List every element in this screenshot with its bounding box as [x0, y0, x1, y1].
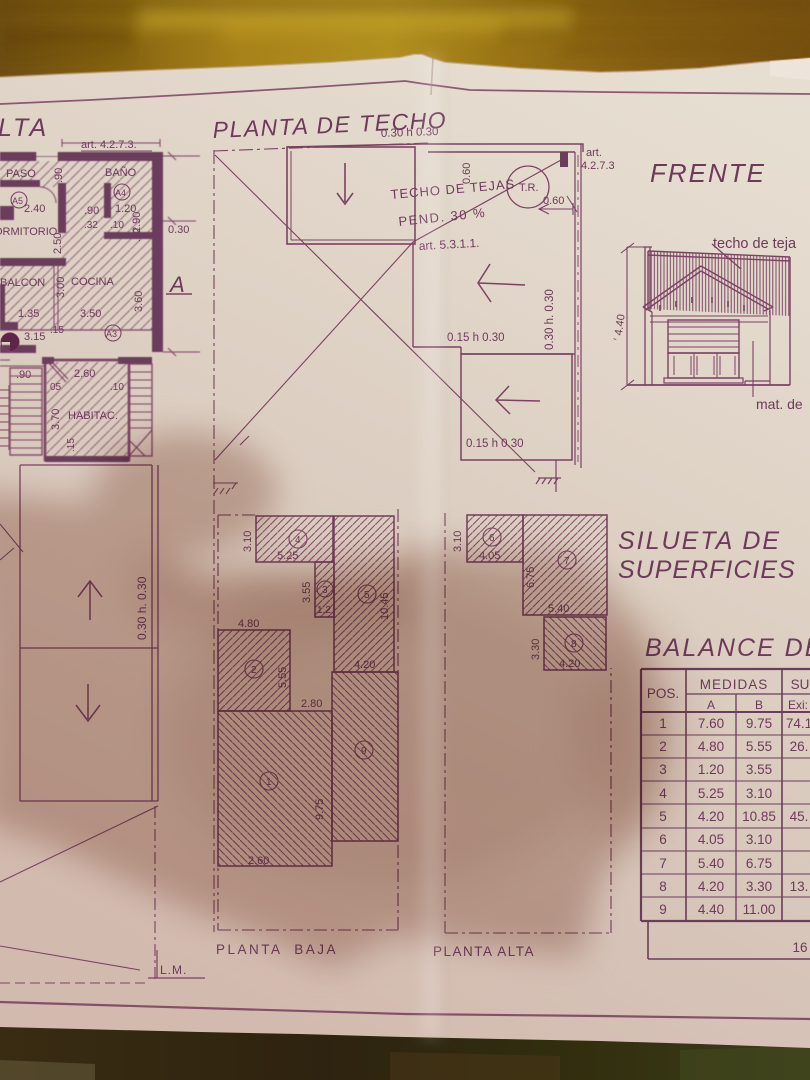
svg-text:3.60: 3.60 [133, 291, 145, 312]
svg-text:05: 05 [50, 382, 62, 393]
svg-text:SUPERFICIES: SUPERFICIES [618, 556, 796, 584]
svg-text:BAÑO: BAÑO [105, 166, 137, 179]
svg-text:5.40: 5.40 [698, 856, 724, 871]
svg-text:6: 6 [659, 832, 667, 847]
svg-text:MEDIDAS: MEDIDAS [700, 677, 769, 692]
svg-text:7.60: 7.60 [698, 716, 724, 731]
svg-text:9.75: 9.75 [746, 716, 772, 731]
svg-text:LTA: LTA [0, 114, 49, 142]
svg-text:Exi:: Exi: [788, 698, 808, 712]
svg-text:art.: art. [586, 147, 602, 159]
svg-text:5.25: 5.25 [698, 786, 724, 801]
svg-text:techo de teja: techo de teja [713, 236, 797, 252]
svg-text:0.30 h. 0.30: 0.30 h. 0.30 [544, 289, 556, 350]
svg-text:2.40: 2.40 [24, 203, 45, 215]
svg-text:.15: .15 [66, 438, 77, 452]
svg-text:A4: A4 [115, 188, 126, 198]
svg-text:3.10: 3.10 [746, 832, 772, 847]
svg-text:7: 7 [659, 856, 667, 871]
svg-text:4.40: 4.40 [698, 902, 724, 917]
svg-text:A3: A3 [106, 329, 117, 339]
svg-text:0.15 h 0.30: 0.15 h 0.30 [466, 438, 524, 450]
svg-text:3.15: 3.15 [24, 331, 45, 343]
svg-text:.90: .90 [16, 369, 31, 381]
svg-text:13.: 13. [790, 879, 809, 894]
svg-text:COCINA: COCINA [71, 276, 114, 288]
svg-text:BALCON: BALCON [0, 277, 45, 289]
svg-text:10.85: 10.85 [742, 809, 776, 824]
svg-text:4.2.7.3: 4.2.7.3 [581, 160, 615, 172]
svg-text:5.25: 5.25 [277, 550, 298, 562]
svg-text:3.55: 3.55 [746, 762, 772, 777]
svg-text:3.70: 3.70 [50, 409, 62, 430]
svg-text:.90: .90 [53, 168, 65, 183]
svg-text:2.60: 2.60 [74, 368, 95, 380]
svg-text:8: 8 [659, 879, 667, 894]
svg-text:.10: .10 [110, 220, 124, 231]
svg-text:3.10: 3.10 [746, 786, 772, 801]
svg-text:4.05: 4.05 [698, 832, 724, 847]
svg-text:1.20: 1.20 [698, 762, 724, 777]
svg-text:0.30: 0.30 [168, 224, 189, 236]
svg-text:FRENTE: FRENTE [650, 158, 766, 188]
svg-text:T.R.: T.R. [519, 182, 539, 194]
svg-text:A5: A5 [12, 196, 23, 206]
svg-text:6.75: 6.75 [746, 856, 772, 871]
svg-text:art. 4.2.7.3.: art. 4.2.7.3. [81, 139, 137, 151]
svg-text:0.60: 0.60 [543, 195, 564, 207]
svg-text:.90: .90 [84, 205, 99, 217]
svg-text:0.15 h 0.30: 0.15 h 0.30 [447, 332, 505, 344]
svg-text:6: 6 [489, 533, 495, 544]
svg-text:ORMITORIO: ORMITORIO [0, 226, 58, 238]
svg-text:mat. de: mat. de [756, 396, 803, 412]
svg-text:74.1: 74.1 [786, 716, 810, 731]
svg-text:4.20: 4.20 [698, 809, 724, 824]
svg-text:11.00: 11.00 [743, 902, 776, 917]
svg-text:3.50: 3.50 [80, 308, 101, 320]
svg-text:2.50: 2.50 [52, 233, 64, 254]
svg-text:9: 9 [659, 902, 667, 917]
svg-text:0.60: 0.60 [461, 163, 473, 184]
svg-text:.15: .15 [50, 325, 64, 336]
svg-text:.32: .32 [84, 220, 98, 231]
svg-text:5.55: 5.55 [746, 739, 772, 754]
svg-text:.10: .10 [132, 228, 143, 242]
svg-text:L.M.: L.M. [160, 963, 187, 977]
svg-text:HABITAC.: HABITAC. [68, 410, 118, 422]
svg-text:SILUETA DE: SILUETA DE [618, 527, 781, 555]
svg-text:45.: 45. [790, 809, 809, 824]
svg-text:4.80: 4.80 [698, 739, 724, 754]
svg-text:4: 4 [295, 535, 301, 546]
svg-text:.10: .10 [110, 382, 124, 393]
svg-text:A: A [707, 698, 715, 712]
svg-text:3.00: 3.00 [55, 277, 67, 298]
svg-text:26.: 26. [790, 739, 809, 754]
svg-text:SU: SU [791, 677, 810, 692]
svg-text:16: 16 [792, 940, 807, 955]
svg-text:B: B [755, 698, 763, 712]
svg-text:1.35: 1.35 [18, 308, 39, 320]
svg-text:3.30: 3.30 [746, 879, 772, 894]
svg-text:PASO: PASO [6, 168, 36, 180]
svg-text:4.20: 4.20 [698, 879, 724, 894]
